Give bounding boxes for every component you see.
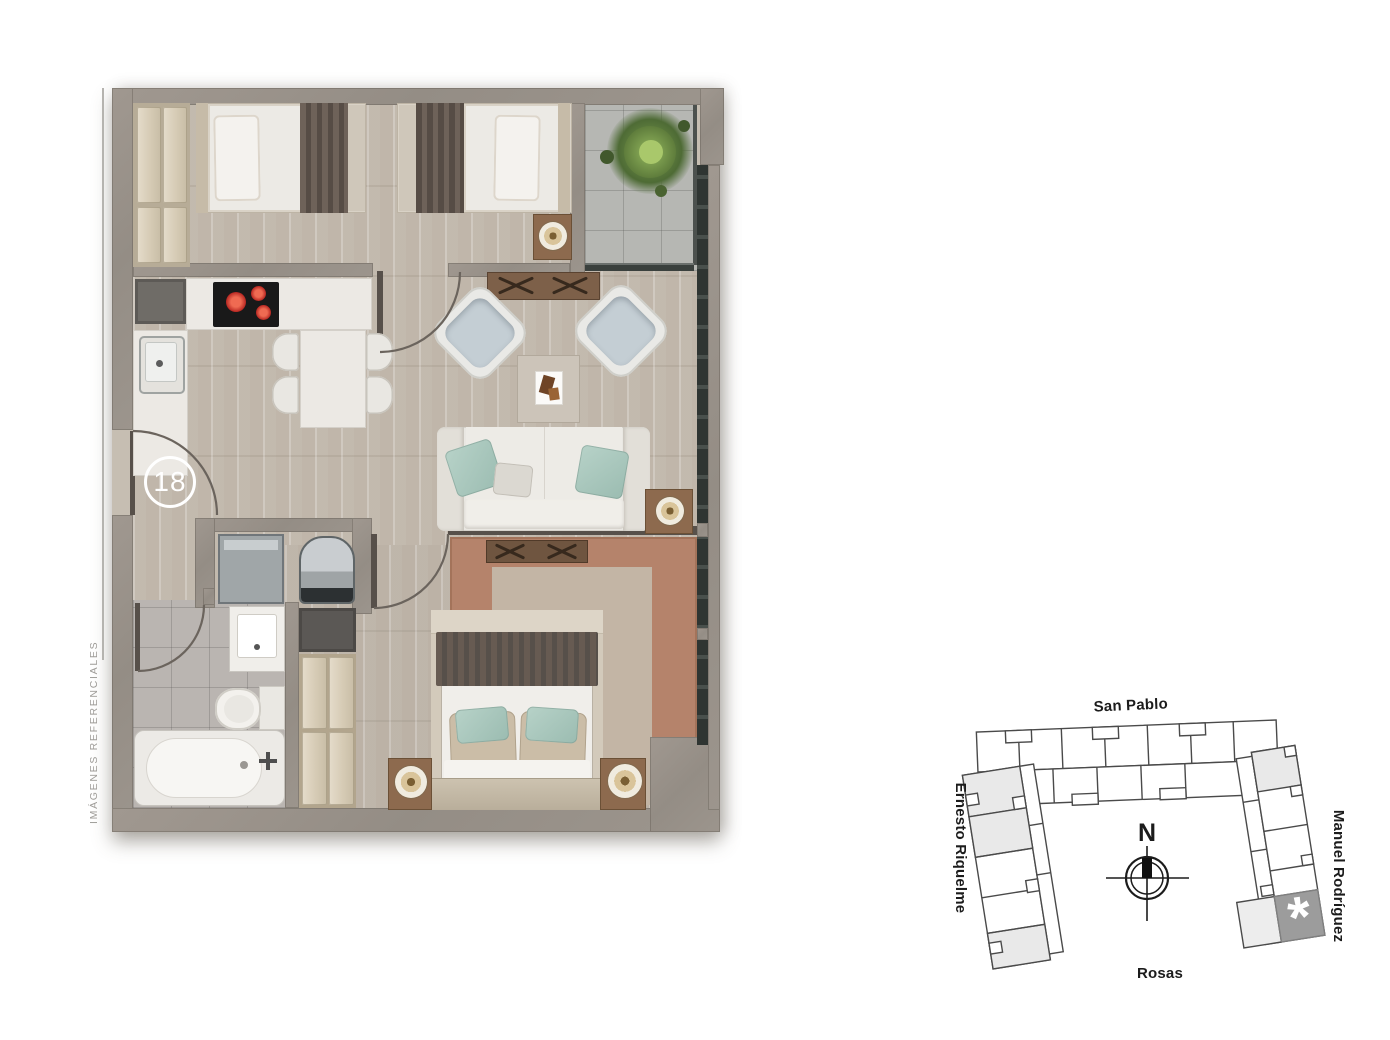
washing-machine-panel [224, 540, 278, 550]
single-bed-left-throw [300, 103, 348, 213]
wall-bottom [112, 808, 704, 832]
window-mullion-2 [697, 628, 708, 640]
sofa-back-cushion [464, 499, 624, 529]
watermark-rule [102, 88, 104, 660]
lamp-bedroom2 [539, 222, 567, 250]
compass [1106, 846, 1189, 921]
stove-burner [226, 292, 246, 312]
single-bed-right-throw [416, 103, 464, 213]
bathroom-door-leaf [135, 603, 140, 671]
dining-chair [366, 376, 393, 414]
street-label-top: San Pablo [1093, 695, 1168, 715]
page: 18 IMÁGENES REFERENCIALES [0, 0, 1390, 1040]
double-bed-headboard [431, 778, 603, 810]
kitchen-appliance-column [135, 279, 186, 324]
street-label-right: Manuel Rodríguez [1330, 810, 1347, 942]
watermark-note: IMÁGENES REFERENCIALES [88, 641, 100, 824]
site-map: * San Pablo Ernesto Riquelme Manuel Rodr… [915, 665, 1390, 1025]
window-right-glazing [697, 165, 708, 745]
single-bed-right-headboard [558, 103, 570, 213]
wardrobe-panel [329, 732, 354, 805]
double-bed-foot-bar [431, 610, 603, 634]
compass-needle [1142, 858, 1152, 878]
wardrobe-panel [329, 657, 354, 729]
unit-number-badge: 18 [144, 456, 196, 508]
wall-left-lower [112, 515, 133, 832]
kitchen-faucet [156, 360, 163, 367]
plant-foliage-core [639, 140, 663, 164]
single-bed-left-foot [348, 105, 365, 211]
toilet-seat [224, 695, 254, 723]
single-bed-right-foot [399, 105, 416, 211]
closet-panel [137, 207, 161, 263]
closet-panel [163, 207, 187, 263]
wall-bedroom2-balcony [570, 103, 585, 277]
wall-bathroom-right [285, 602, 299, 808]
floor-plan: 18 IMÁGENES REFERENCIALES [0, 0, 760, 900]
console-table-bedroom [486, 540, 588, 563]
sofa-pillow-gray [492, 462, 533, 498]
balcony-rail [693, 105, 697, 265]
single-bed-left-headboard [196, 103, 208, 213]
wall-utility-right [352, 518, 372, 614]
lamp-master-right [608, 764, 642, 798]
dining-chair [272, 333, 299, 371]
wall-right-outer [708, 165, 720, 810]
wall-top-right-block [700, 88, 724, 165]
stove-burner [251, 286, 266, 301]
dining-chair [366, 333, 393, 371]
closet-panel [137, 107, 161, 203]
double-bed-cushion-teal-right [525, 706, 579, 744]
wardrobe-panel [302, 657, 327, 729]
toilet-tank [259, 686, 285, 730]
balcony-slider-door [585, 263, 694, 271]
closet-panel [163, 107, 187, 203]
wardrobe-panel [302, 732, 327, 805]
bathtub-faucet [259, 759, 277, 763]
window-mullion-1 [697, 523, 708, 537]
double-bed-sheet-fold [444, 760, 590, 780]
sofa-pillow-teal-right [574, 444, 630, 500]
plant-leaf [655, 185, 667, 197]
dryer-base [301, 588, 353, 602]
wall-utility-top [195, 518, 372, 532]
wall-left-upper [112, 88, 133, 430]
single-bed-left-pillow [213, 115, 260, 202]
console-table-living [487, 272, 600, 300]
bathtub-drain [240, 761, 248, 769]
tray-item [548, 387, 560, 400]
double-bed-cushion-teal-left [455, 706, 510, 744]
master-door-leaf [371, 534, 377, 608]
compass-label: N [1138, 819, 1156, 847]
vanity-faucet [254, 644, 260, 650]
plant-leaf [678, 120, 690, 132]
plant-leaf [600, 150, 614, 164]
kitchen-peninsula-table [300, 330, 366, 428]
candle-living [656, 497, 684, 525]
street-label-bottom: Rosas [1137, 965, 1183, 982]
double-bed-throw [436, 632, 598, 686]
stove-burner [256, 305, 271, 320]
stove-cooktop [213, 282, 279, 327]
street-label-left: Ernesto Riquelme [952, 783, 969, 914]
single-bed-right-pillow [493, 115, 540, 202]
lamp-master-left [395, 766, 427, 798]
storage-niche [299, 608, 356, 652]
dining-chair [272, 376, 299, 414]
wall-bathroom-stub [203, 588, 215, 605]
vanity-basin [237, 614, 277, 658]
